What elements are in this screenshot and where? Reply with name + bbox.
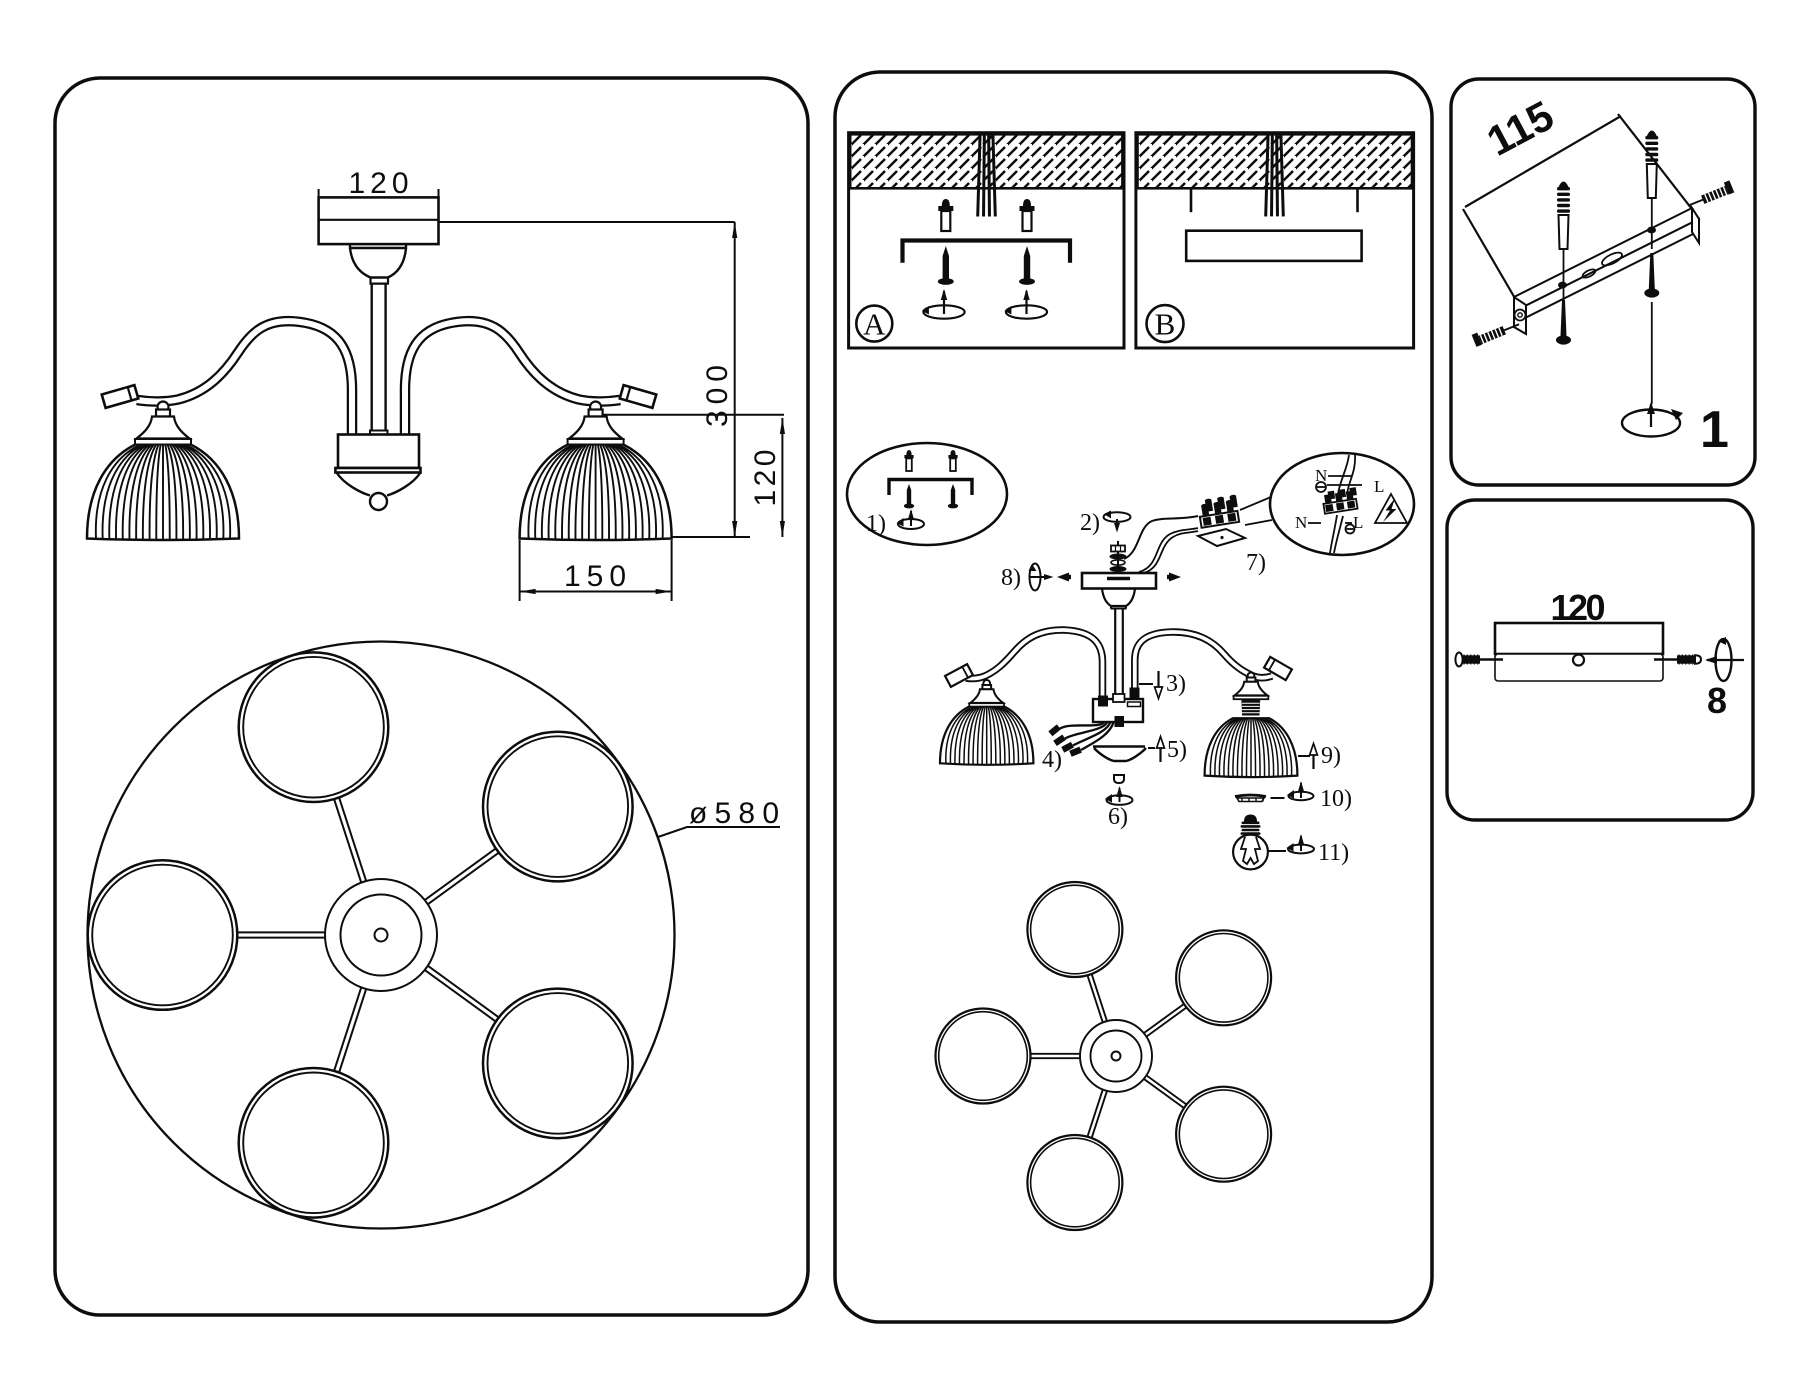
svg-text:120: 120 [749, 450, 782, 507]
svg-text:8: 8 [1707, 680, 1727, 721]
svg-text:8): 8) [1001, 565, 1021, 591]
svg-text:3): 3) [1166, 671, 1186, 697]
svg-text:6): 6) [1108, 804, 1128, 830]
svg-text:A: A [863, 307, 886, 342]
svg-text:150: 150 [564, 560, 626, 593]
svg-text:1): 1) [866, 511, 886, 537]
svg-text:B: B [1155, 307, 1176, 342]
svg-text:120: 120 [349, 167, 409, 200]
svg-text:N: N [1295, 513, 1307, 532]
svg-text:11): 11) [1318, 840, 1349, 866]
svg-text:5): 5) [1167, 737, 1187, 763]
svg-text:1: 1 [1700, 401, 1729, 459]
svg-text:300: 300 [701, 365, 734, 427]
svg-text:4): 4) [1042, 747, 1062, 773]
svg-text:10): 10) [1320, 786, 1352, 812]
svg-text:7): 7) [1246, 550, 1266, 576]
svg-text:L: L [1374, 477, 1384, 496]
svg-text:9): 9) [1321, 743, 1341, 769]
svg-text:2): 2) [1080, 510, 1100, 536]
